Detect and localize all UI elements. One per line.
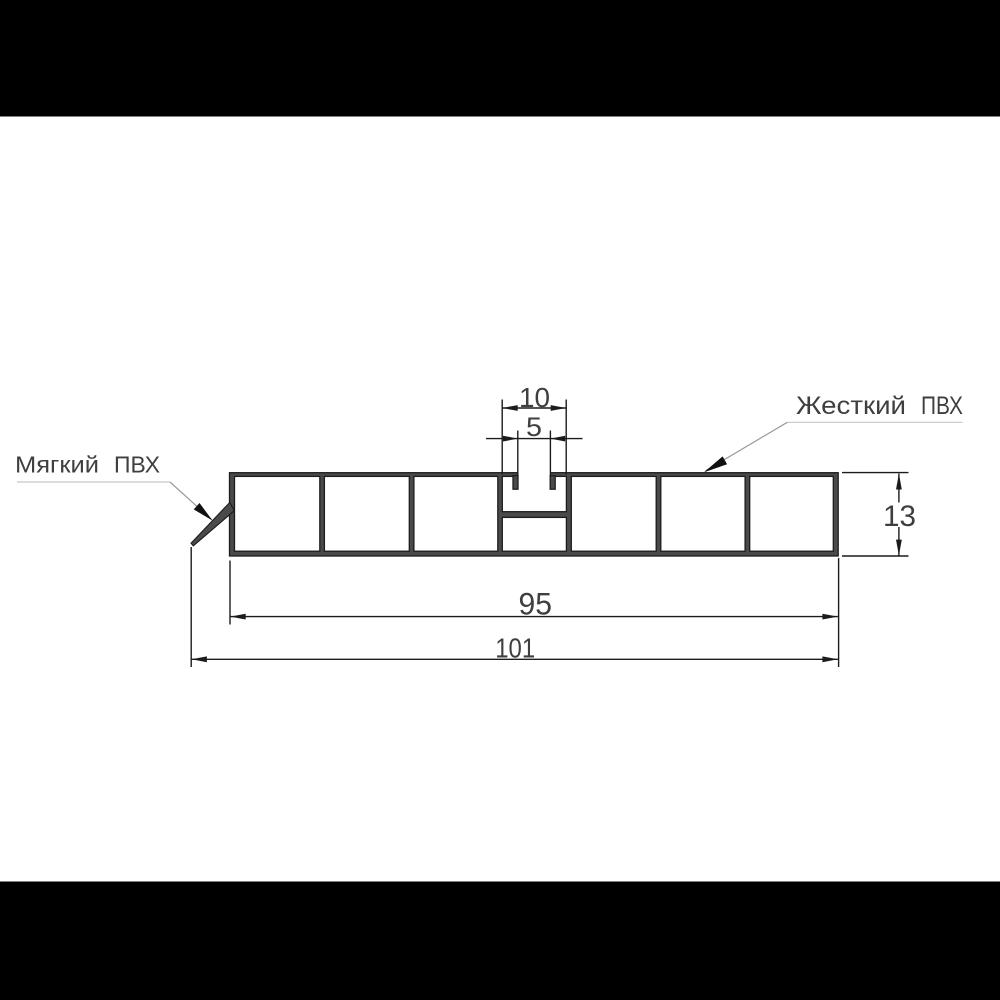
svg-text:ПВХ: ПВХ [114,452,160,478]
svg-text:10: 10 [519,382,550,413]
svg-text:Жесткий: Жесткий [796,392,906,420]
svg-text:13: 13 [883,500,916,533]
svg-text:Мягкий: Мягкий [15,452,99,478]
svg-text:101: 101 [495,632,535,663]
svg-text:5: 5 [526,412,542,442]
svg-text:95: 95 [519,586,553,622]
svg-text:ПВХ: ПВХ [921,392,963,420]
